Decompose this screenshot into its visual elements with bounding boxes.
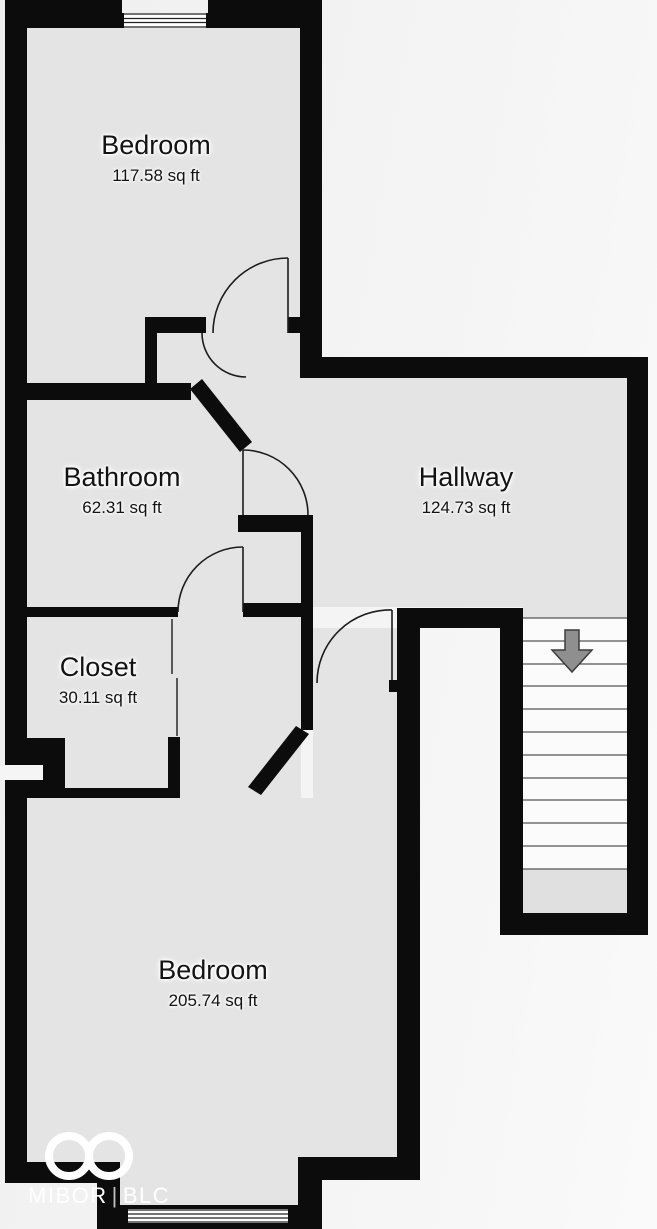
wall-bedroom2-right: [397, 608, 420, 1180]
wall-stair-bottom: [500, 913, 648, 935]
wall-stair-left: [500, 608, 523, 935]
wall-left-slot: [0, 765, 43, 780]
wall-outer-right: [627, 357, 648, 935]
wall-bedroom2-door-jamb: [389, 680, 398, 692]
logo-suffix: BLC: [123, 1183, 170, 1208]
floor-vestibule-gap: [168, 785, 301, 798]
floor-hallway: [243, 378, 627, 607]
wall-closet-right-stub: [168, 737, 180, 790]
floorplan-canvas: MIBOR|BLC Bedroom 117.58 sq ft Bathroom …: [0, 0, 657, 1229]
staircase: [523, 618, 627, 913]
logo-text: MIBOR|BLC: [28, 1183, 170, 1208]
wall-vestibule-hallway: [301, 515, 313, 730]
floor-bedroom-entry: [313, 628, 397, 800]
window-top: [116, 13, 214, 28]
logo-brand: MIBOR: [28, 1183, 108, 1208]
window-bottom: [121, 1207, 295, 1224]
wall-vestibule-vertical: [145, 317, 157, 398]
wall-bathroom-bottom: [27, 607, 178, 617]
wall-left: [5, 0, 27, 1183]
wall-closet-bottom: [5, 788, 180, 798]
wall-hallway-top: [322, 357, 627, 378]
logo-divider: |: [112, 1183, 119, 1208]
wall-bedroom1-door-jamb: [288, 317, 300, 333]
floor-bathroom: [27, 400, 243, 607]
stair-landing: [523, 869, 627, 913]
wall-alcove-top: [238, 515, 308, 532]
wall-bedroom1-right: [300, 0, 322, 378]
wall-bathroom-top: [27, 383, 191, 400]
floorplan-drawing: MIBOR|BLC: [0, 0, 657, 1229]
wall-alcove-bottom: [243, 603, 308, 617]
floor-hallway-stair-tongue: [523, 600, 627, 618]
